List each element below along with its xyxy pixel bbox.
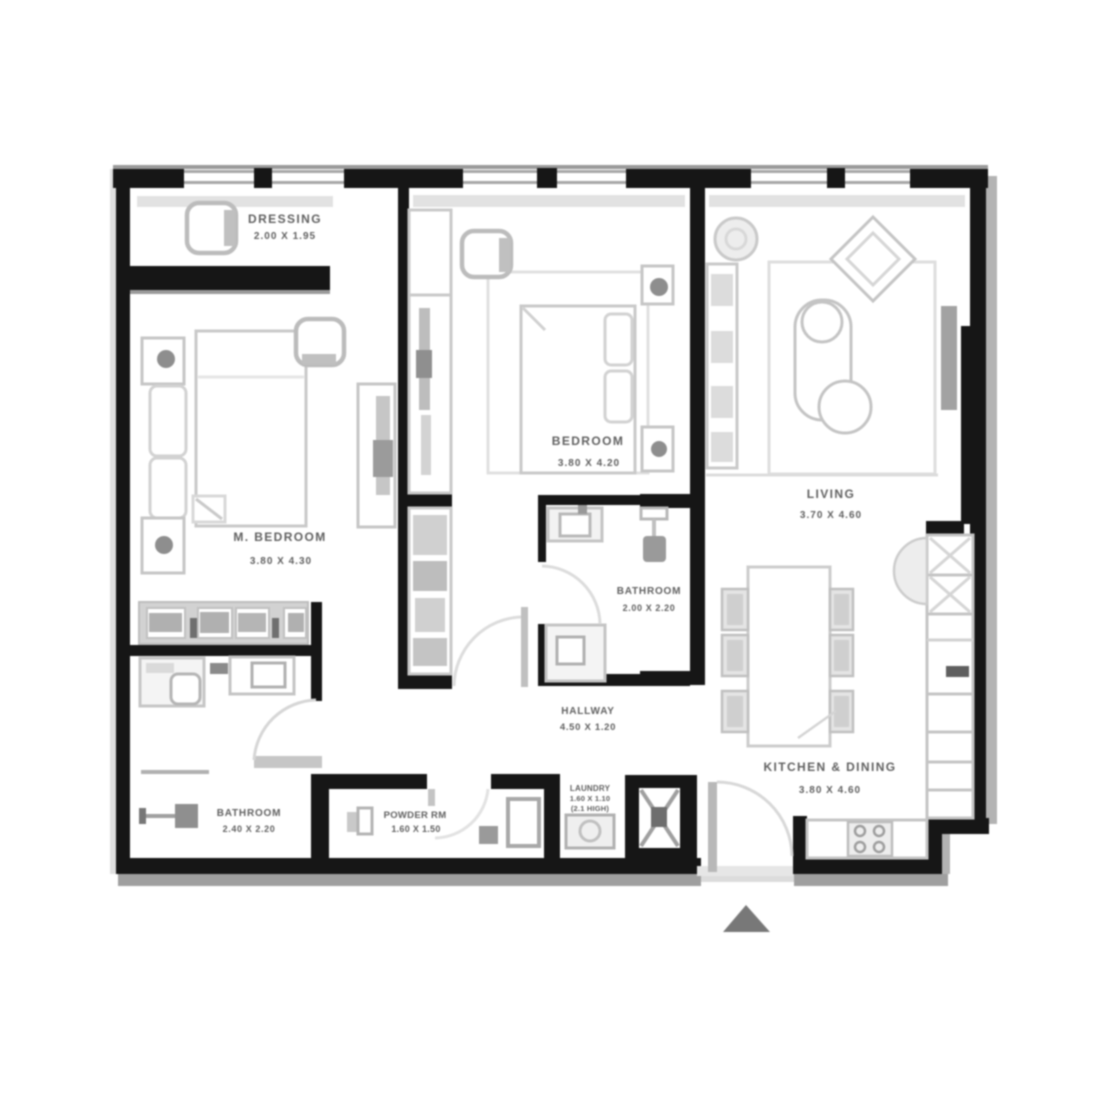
svg-text:LIVING: LIVING <box>807 487 855 501</box>
svg-text:M. BEDROOM: M. BEDROOM <box>233 530 326 544</box>
svg-text:3.80 X 4.60: 3.80 X 4.60 <box>799 785 861 796</box>
svg-text:KITCHEN & DINING: KITCHEN & DINING <box>763 760 896 774</box>
svg-text:DRESSING: DRESSING <box>248 212 322 226</box>
svg-text:3.80 X 4.30: 3.80 X 4.30 <box>250 556 312 567</box>
svg-text:(2.1 HIGH): (2.1 HIGH) <box>571 804 610 813</box>
svg-text:POWDER RM: POWDER RM <box>384 810 447 821</box>
svg-text:1.60 X 1.50: 1.60 X 1.50 <box>391 824 440 834</box>
svg-text:2.00 X 1.95: 2.00 X 1.95 <box>254 231 316 242</box>
svg-text:HALLWAY: HALLWAY <box>561 706 615 717</box>
svg-text:1.60 X 1.10: 1.60 X 1.10 <box>570 794 611 803</box>
svg-text:BATHROOM: BATHROOM <box>217 808 282 819</box>
svg-text:3.80 X 4.20: 3.80 X 4.20 <box>558 458 620 469</box>
svg-text:4.50 X 1.20: 4.50 X 1.20 <box>560 722 616 733</box>
svg-text:BATHROOM: BATHROOM <box>617 586 682 597</box>
svg-text:2.40 X 2.20: 2.40 X 2.20 <box>223 824 276 834</box>
svg-text:2.00 X 2.20: 2.00 X 2.20 <box>623 603 676 613</box>
svg-text:3.70 X 4.60: 3.70 X 4.60 <box>800 510 862 521</box>
svg-text:BEDROOM: BEDROOM <box>552 434 624 448</box>
svg-text:LAUNDRY: LAUNDRY <box>570 784 611 793</box>
